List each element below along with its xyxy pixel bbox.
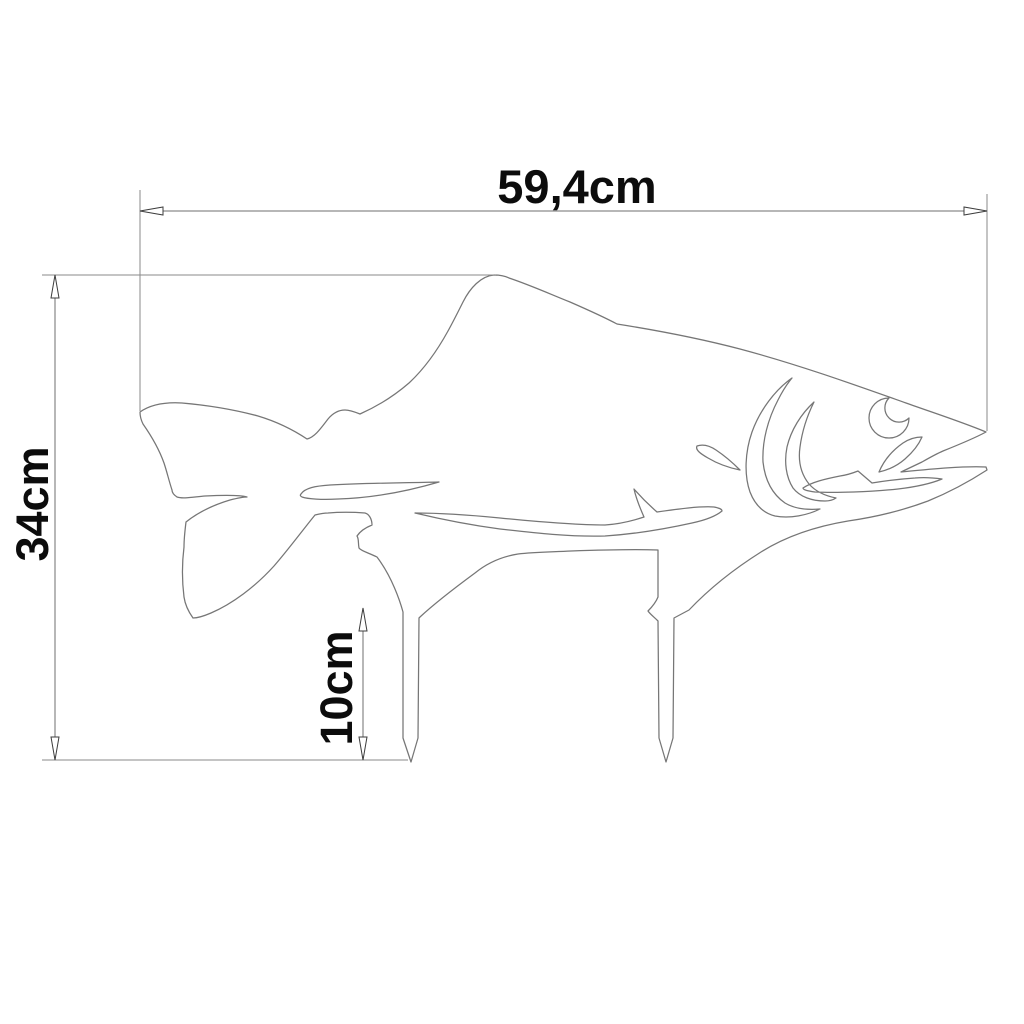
- dimension-lines: [55, 211, 987, 760]
- width-arrow-right: [964, 207, 987, 215]
- stake-arrow-top: [359, 608, 367, 631]
- dimension-labels: 59,4cm 34cm 10cm: [7, 160, 657, 746]
- width-dimension-label: 59,4cm: [497, 160, 656, 213]
- height-arrow-bottom: [51, 737, 59, 760]
- stake-dimension-label: 10cm: [311, 630, 362, 745]
- dimension-arrows: [51, 207, 987, 760]
- width-arrow-left: [140, 207, 163, 215]
- fish-silhouette: [140, 275, 987, 762]
- fish-detail-cuts: [300, 378, 942, 536]
- drawing-canvas: 59,4cm 34cm 10cm: [0, 0, 1024, 1024]
- height-dimension-label: 34cm: [7, 446, 58, 561]
- height-arrow-top: [51, 275, 59, 298]
- technical-drawing: 59,4cm 34cm 10cm: [0, 0, 1024, 1024]
- dimension-annotations: 59,4cm 34cm 10cm: [7, 160, 987, 760]
- fish-body-outline: [140, 275, 987, 762]
